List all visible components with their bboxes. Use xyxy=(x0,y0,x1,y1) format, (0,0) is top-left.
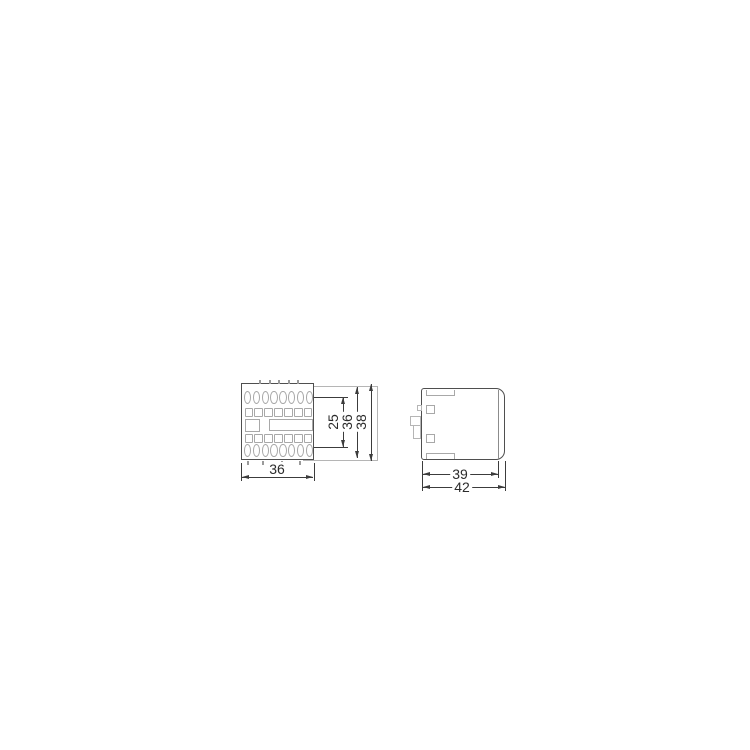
terminal-square xyxy=(245,408,253,417)
terminal-square xyxy=(254,408,262,417)
terminal-circle xyxy=(262,444,269,457)
technical-drawing: 25 36 38 36 xyxy=(0,0,750,750)
terminal-square xyxy=(274,408,282,417)
terminal-square xyxy=(245,434,253,443)
side-bottom-recess xyxy=(426,453,455,459)
side-clip-upper xyxy=(410,416,421,426)
terminal-circle xyxy=(244,444,251,457)
dim-label-38: 38 xyxy=(354,412,368,432)
arrowhead-right xyxy=(306,475,313,479)
terminal-circle xyxy=(306,444,313,457)
terminal-circle xyxy=(262,391,269,404)
side-view-body xyxy=(421,388,505,460)
arrowhead-down xyxy=(341,440,345,447)
arrowhead-up xyxy=(355,387,359,394)
arrowhead-left xyxy=(242,475,249,479)
terminal-square xyxy=(294,434,302,443)
dim-label-36: 36 xyxy=(267,462,287,476)
arrowhead-right xyxy=(491,472,498,476)
dim-label-25: 25 xyxy=(326,412,340,432)
terminal-circle xyxy=(279,391,286,404)
dim-extension xyxy=(498,461,499,478)
terminal-circle xyxy=(297,391,304,404)
front-bottom-tick xyxy=(299,461,301,465)
dim-leader xyxy=(314,447,348,448)
dim-extension xyxy=(505,461,506,491)
terminal-row-circles-bottom xyxy=(244,444,313,457)
arrowhead-left xyxy=(423,472,430,476)
terminal-square xyxy=(304,434,312,443)
terminal-circle xyxy=(306,391,313,404)
dim-extension xyxy=(314,463,315,481)
terminal-square xyxy=(284,408,292,417)
front-bottom-tick xyxy=(247,461,249,465)
terminal-square xyxy=(254,434,262,443)
phantom-profile-bottom xyxy=(303,460,377,461)
dim-label-42: 42 xyxy=(452,480,472,494)
arrowhead-left xyxy=(423,485,430,489)
dim-label-36v: 36 xyxy=(340,412,354,432)
terminal-circle xyxy=(270,391,277,404)
terminal-circle xyxy=(288,444,295,457)
dim-line xyxy=(371,384,372,461)
terminal-circle xyxy=(253,444,260,457)
terminal-circle xyxy=(297,444,304,457)
front-top-tick xyxy=(288,380,290,384)
arrowhead-down xyxy=(355,451,359,458)
side-top-recess xyxy=(426,390,455,396)
side-clip-lower xyxy=(413,426,422,439)
terminal-square xyxy=(264,434,272,443)
terminal-circle xyxy=(279,444,286,457)
terminal-circle xyxy=(288,391,295,404)
front-top-tick xyxy=(278,380,280,384)
terminal-square xyxy=(284,434,292,443)
side-cap-line xyxy=(498,390,499,459)
front-window-small xyxy=(245,419,261,432)
terminal-circle xyxy=(270,444,277,457)
terminal-square xyxy=(264,408,272,417)
front-top-tick xyxy=(297,380,299,384)
arrowhead-up xyxy=(369,384,373,391)
side-square-lower xyxy=(426,434,435,443)
terminal-circle xyxy=(253,391,260,404)
terminal-square xyxy=(304,408,312,417)
terminal-square xyxy=(294,408,302,417)
side-clip-tab xyxy=(417,405,422,411)
phantom-profile-right xyxy=(377,386,378,461)
arrowhead-right xyxy=(498,485,505,489)
terminal-circle xyxy=(244,391,251,404)
terminal-square xyxy=(274,434,282,443)
front-top-tick xyxy=(269,380,271,384)
terminal-row-circles-top xyxy=(244,391,313,404)
side-square-upper xyxy=(426,405,435,414)
front-window-large xyxy=(269,419,313,431)
front-top-tick xyxy=(259,380,261,384)
arrowhead-down xyxy=(369,454,373,461)
terminal-row-squares-lower xyxy=(245,434,313,443)
arrowhead-up xyxy=(341,397,345,404)
front-bottom-tick xyxy=(262,461,264,465)
terminal-row-squares-upper xyxy=(245,408,313,417)
